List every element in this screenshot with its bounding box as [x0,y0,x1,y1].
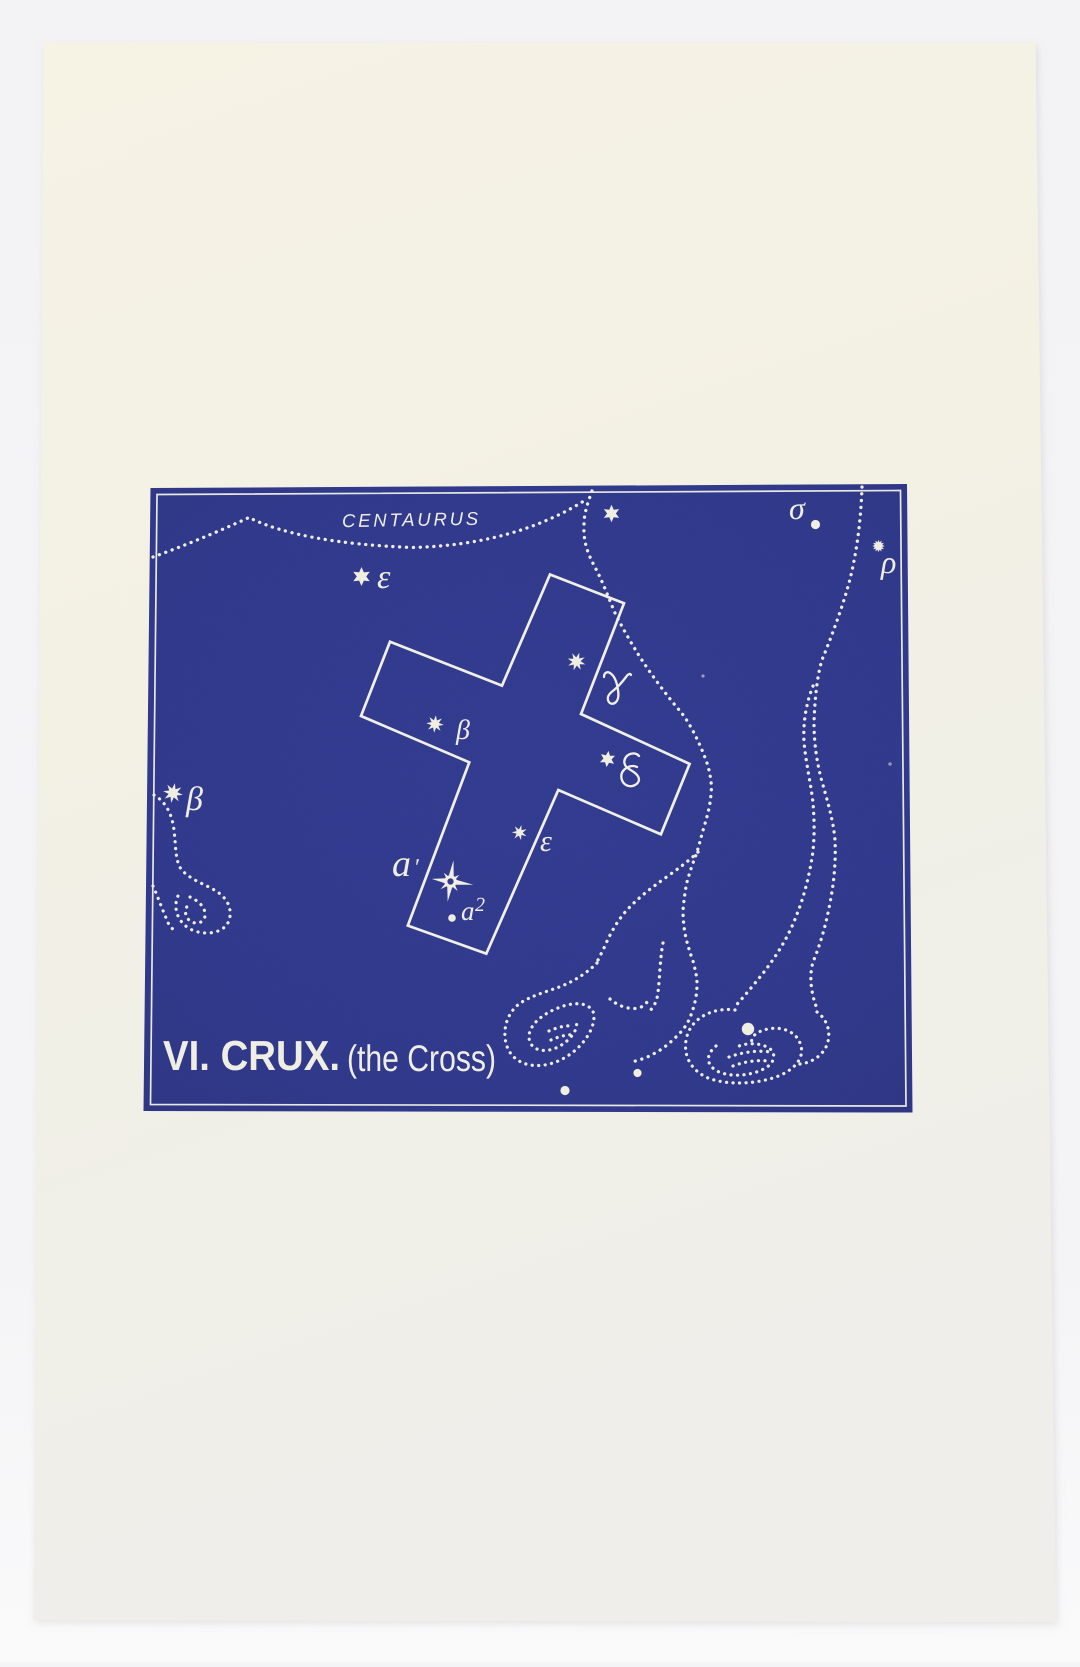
svg-text:ε: ε [540,825,552,858]
svg-text:β: β [185,781,203,818]
svg-text:VI. CRUX.: VI. CRUX. [163,1032,340,1079]
svg-text:a: a [461,896,475,926]
svg-text:CENTAURUS: CENTAURUS [342,508,481,531]
svg-text:2: 2 [475,894,485,916]
svg-text:(the Cross): (the Cross) [347,1038,496,1079]
svg-text:ε: ε [377,559,391,596]
svg-text:σ: σ [789,490,806,526]
svg-text:a: a [392,843,411,885]
svg-text:′: ′ [415,855,420,881]
svg-text:ρ: ρ [880,544,896,580]
svg-text:β: β [455,715,470,746]
